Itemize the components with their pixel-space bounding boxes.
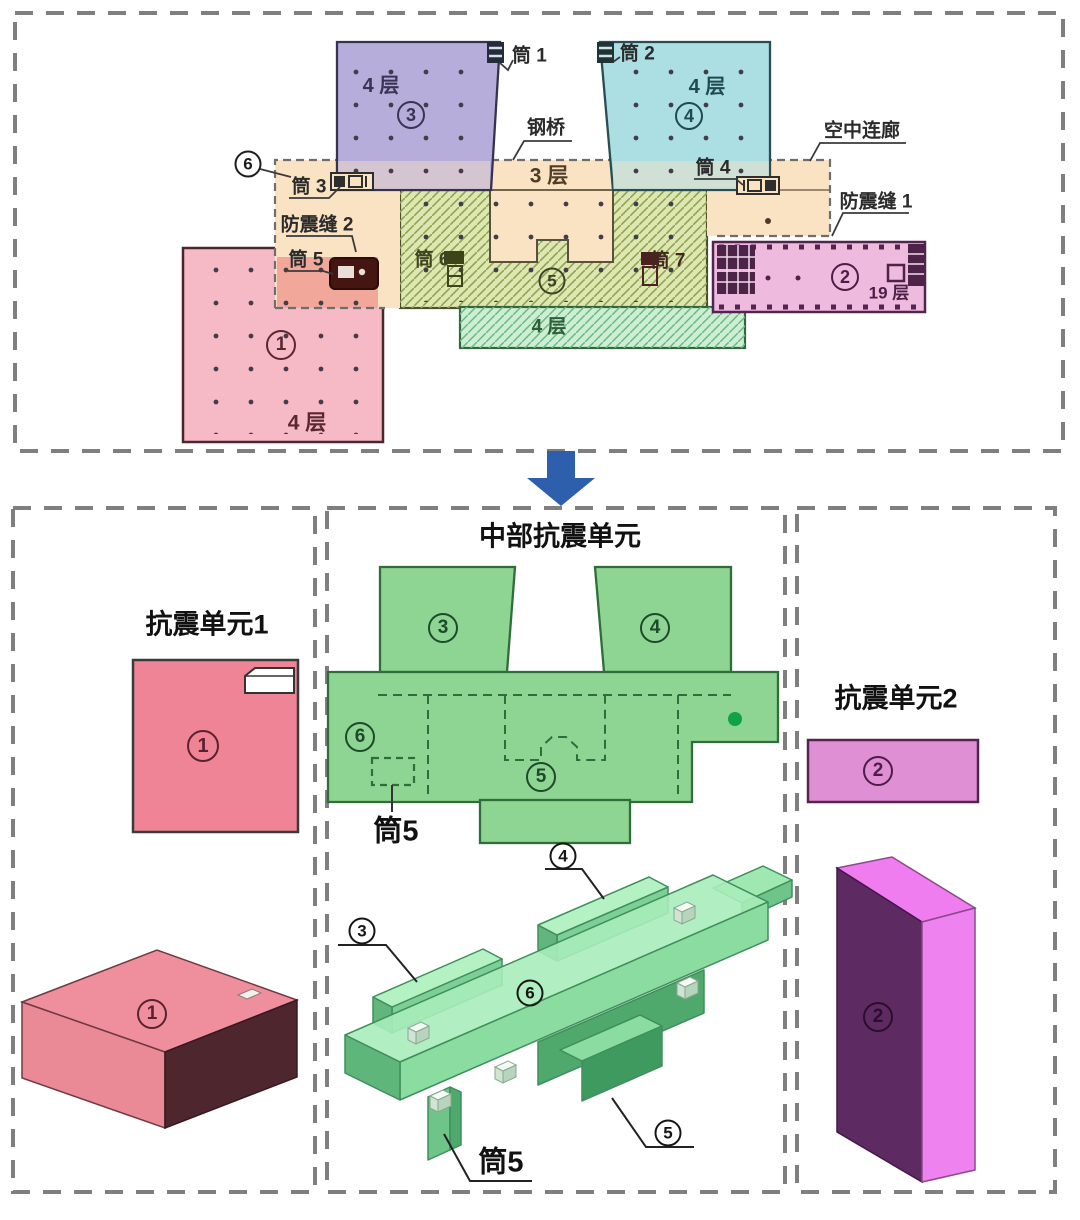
seismic-joint1-label: 防震缝 1 [840, 193, 913, 212]
central-iso-number-5: 5 [655, 1120, 682, 1147]
unit2-iso-number: 2 [863, 1002, 893, 1032]
unit1-iso-number: 1 [137, 999, 167, 1029]
zone3-floors-label: 4 层 [363, 76, 400, 96]
zone4-floors-label: 4 层 [689, 77, 726, 97]
central-iso-number-3: 3 [349, 918, 376, 945]
zone3-number: 3 [397, 101, 425, 129]
iso-leader-4 [545, 869, 604, 899]
iso-leader-3 [338, 945, 417, 982]
tong7-label: 筒 7 [651, 252, 686, 271]
central-iso-tong5-label: 筒5 [478, 1149, 523, 1178]
central-plan-number-3: 3 [428, 613, 458, 643]
seismic-joint2-label: 防震缝 2 [281, 216, 354, 235]
central-unit-title: 中部抗震单元 [479, 524, 641, 551]
sky-corridor-label: 空中连廊 [824, 122, 900, 141]
iso-tong5-column-side [450, 1087, 461, 1150]
zone2-number: 2 [831, 263, 859, 291]
tong3-label: 筒 3 [292, 178, 327, 197]
steel-bridge-leader [513, 141, 572, 160]
sky-corridor-leader [810, 143, 906, 161]
unit2-plan-rect [808, 740, 978, 802]
zone6-number: 6 [235, 151, 262, 178]
down-arrow [527, 451, 595, 506]
tong4-label: 筒 4 [696, 159, 731, 178]
seismic-units-infographic: 筒 1 筒 2 钢桥 空中连廊 3 层 筒 4 防震缝 1 6 筒 3 防震缝 … [0, 0, 1080, 1220]
joint1-leader [832, 213, 909, 236]
unit2-iso-side [922, 908, 975, 1182]
unit1-plan-number: 1 [187, 730, 219, 762]
tong2-core [597, 42, 614, 63]
zone2-core-right [908, 244, 924, 286]
central-plan-number-5: 5 [526, 762, 556, 792]
central-iso-number-4: 4 [550, 843, 577, 870]
zone1-floors-label: 4 层 [288, 413, 327, 434]
unit2-title: 抗震单元2 [834, 686, 957, 713]
iso-leader-5 [612, 1098, 694, 1147]
central-plan-number-4: 4 [640, 613, 670, 643]
iso-core-3 [495, 1061, 516, 1083]
corridor-dot [765, 218, 771, 224]
bridge-band-floors-label: 3 层 [530, 166, 569, 187]
central-green-dot [728, 712, 742, 726]
zone4-number: 4 [675, 102, 703, 130]
tong5-label: 筒 5 [289, 251, 324, 270]
tong1-core [487, 42, 504, 63]
lower-4f-label: 4 层 [532, 318, 567, 337]
tong6-label: 筒 6 [415, 251, 450, 270]
zone2-dot-b [796, 276, 801, 281]
zone2-dot-a [766, 276, 771, 281]
tong3-core [331, 173, 373, 190]
top-plan [183, 42, 925, 442]
unit1-core-icon [245, 668, 294, 693]
zone5-number: 5 [539, 268, 566, 295]
lower-4f-hatch [460, 307, 745, 348]
zone2-floors-label: 19 层 [869, 285, 910, 302]
unit1-shapes [22, 660, 298, 1128]
unit2-shapes [808, 740, 978, 1182]
unit2-plan-number: 2 [863, 756, 893, 786]
central-iso-shapes [345, 866, 792, 1160]
zone6-right-block [707, 190, 830, 236]
central-plan-shapes [328, 567, 778, 843]
unit1-title: 抗震单元1 [145, 612, 268, 639]
tong5-core [330, 258, 378, 289]
central-plan-number-6: 6 [345, 722, 375, 752]
tong2-label: 筒 2 [620, 45, 655, 64]
tong4-core [737, 177, 779, 194]
central-protrusion [480, 800, 630, 843]
tong1-label: 筒 1 [512, 47, 547, 66]
central-iso-number-6: 6 [517, 980, 544, 1007]
zone1-number: 1 [266, 330, 296, 360]
steel-bridge-label: 钢桥 [527, 119, 565, 138]
central-plan-tong5-label: 筒5 [373, 818, 418, 847]
